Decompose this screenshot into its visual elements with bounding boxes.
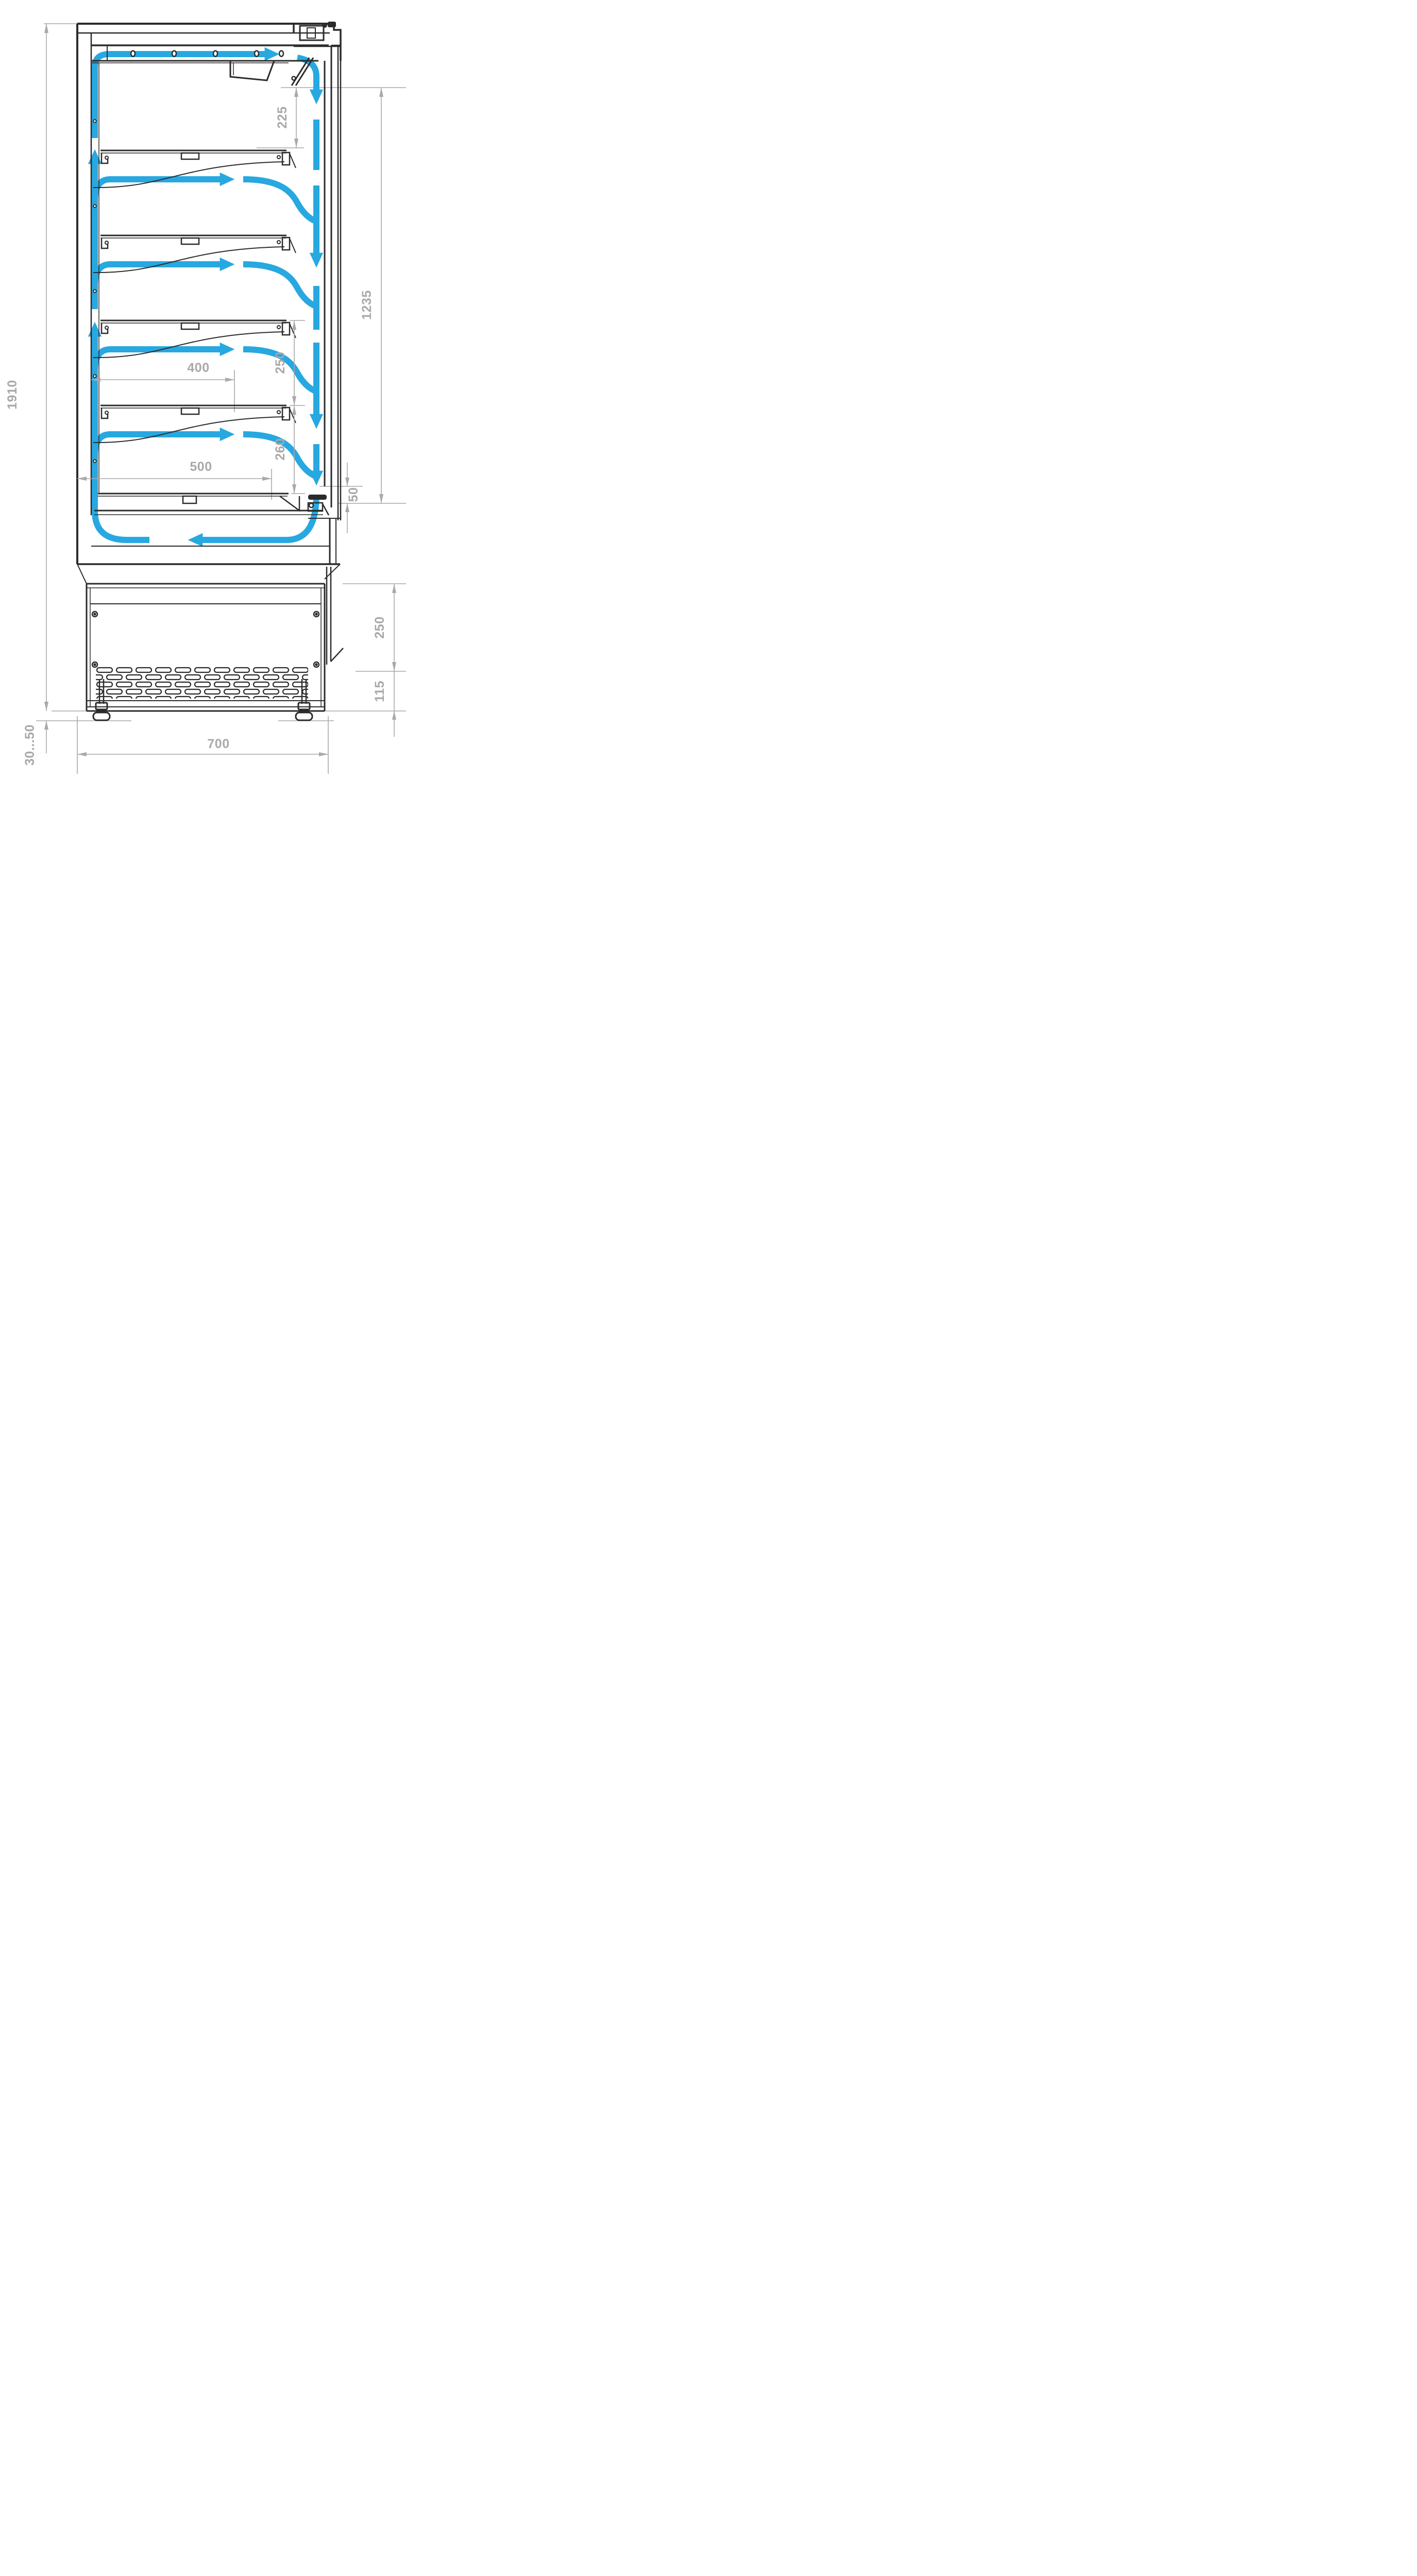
arm-pivot [292,77,296,80]
label-overall-height: 1910 [5,380,20,410]
hinge-cap [328,22,336,27]
machine-base [87,584,325,711]
base-left-step [77,564,87,584]
rear-spacer-tick [331,648,343,662]
deck-front-deflector [280,496,299,511]
product-deck [94,494,323,515]
drawing-canvas: 1910 30...50 700 225 1235 50 250 115 400… [0,0,433,808]
label-shelf-spacing: 250 [273,351,288,374]
ventilation-grille [96,667,308,699]
airflow-spill-curve-1 [243,179,316,222]
canopy-light-fixture [230,61,274,80]
cabinet-structure [77,22,343,720]
glass-door [325,45,341,520]
label-depth: 700 [207,737,229,751]
foot-nut [96,703,107,709]
foot-pad [296,713,312,720]
airflow-shelf-arrow-1 [95,179,221,201]
hinge-screw [322,23,327,28]
foot-nut [298,703,310,709]
door-closer-arm [292,58,309,86]
airflow-spill-curve-2 [243,264,316,307]
technical-drawing: 1910 30...50 700 225 1235 50 250 115 400… [0,0,433,808]
foot-pad [93,713,110,720]
label-foot-adjust: 30...50 [23,724,37,766]
label-deck-depth: 500 [190,460,212,474]
label-grille-height: 115 [373,681,387,702]
base-screws [92,612,319,667]
airflow-shelf-arrow-2 [95,264,221,286]
airflow-top-right-arrow [95,54,266,138]
label-deck-spacing: 260 [273,438,288,460]
label-top-gap: 225 [275,106,290,128]
label-outlet-gap: 50 [346,487,361,502]
label-shelf-depth: 400 [187,361,209,375]
label-base-height: 250 [373,616,387,638]
airflow-shelf-arrow-4 [95,434,221,456]
deck-clip [183,496,196,503]
label-curtain-height: 1235 [360,290,374,320]
